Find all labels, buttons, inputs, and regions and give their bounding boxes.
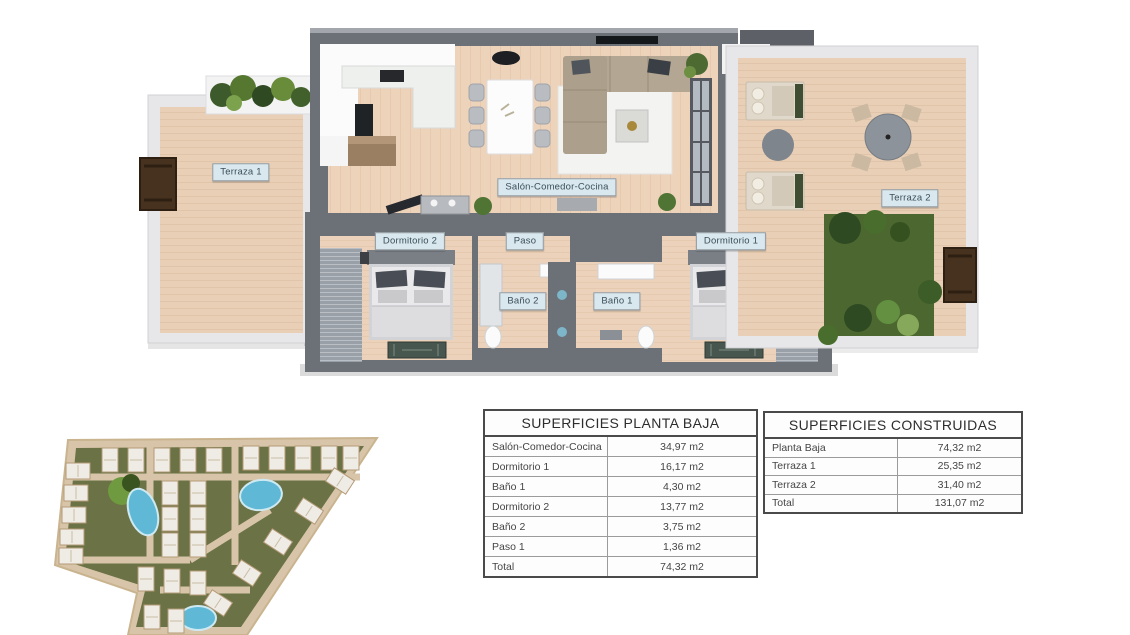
row-label: Terraza 2 xyxy=(765,476,898,494)
dormitorio-2 xyxy=(320,236,472,362)
table-row: Terraza 1 25,35 m2 xyxy=(765,457,1021,476)
site-plan-image xyxy=(40,415,400,635)
row-label: Paso 1 xyxy=(485,537,608,556)
row-value: 25,35 m2 xyxy=(898,458,1021,476)
room-label-terraza-2: Terraza 2 xyxy=(881,189,938,207)
table-row: Salón-Comedor-Cocina 34,97 m2 xyxy=(485,437,756,456)
row-value: 34,97 m2 xyxy=(608,437,756,456)
room-label-paso: Paso xyxy=(506,232,544,250)
lounger xyxy=(746,82,804,120)
row-value: 16,17 m2 xyxy=(608,457,756,476)
row-label: Total xyxy=(765,495,898,513)
row-label: Total xyxy=(485,557,608,576)
table-row: Baño 2 3,75 m2 xyxy=(485,516,756,536)
row-value: 31,40 m2 xyxy=(898,476,1021,494)
row-label: Terraza 1 xyxy=(765,458,898,476)
terraza-2-gate xyxy=(944,248,976,302)
row-label: Dormitorio 2 xyxy=(485,497,608,516)
row-value: 74,32 m2 xyxy=(608,557,756,576)
row-value: 4,30 m2 xyxy=(608,477,756,496)
room-label-bano-2: Baño 2 xyxy=(499,292,546,310)
room-label-salon: Salón-Comedor-Cocina xyxy=(497,178,616,196)
terraza-1-area xyxy=(140,75,314,343)
room-label-dormitorio-1: Dormitorio 1 xyxy=(696,232,766,250)
row-label: Salón-Comedor-Cocina xyxy=(485,437,608,456)
room-label-bano-1: Baño 1 xyxy=(593,292,640,310)
row-value: 13,77 m2 xyxy=(608,497,756,516)
table-superficies-construidas: SUPERFICIES CONSTRUIDAS Planta Baja 74,3… xyxy=(763,411,1023,514)
table-row: Dormitorio 2 13,77 m2 xyxy=(485,496,756,516)
row-value: 74,32 m2 xyxy=(898,439,1021,457)
glass-door xyxy=(690,78,712,206)
page: Terraza 1 Salón-Comedor-Cocina Dormitori… xyxy=(0,0,1130,635)
table-row: Total 74,32 m2 xyxy=(485,556,756,576)
terraza-1-gate xyxy=(140,158,176,210)
row-value: 1,36 m2 xyxy=(608,537,756,556)
row-label: Planta Baja xyxy=(765,439,898,457)
room-label-dormitorio-2: Dormitorio 2 xyxy=(375,232,445,250)
row-label: Dormitorio 1 xyxy=(485,457,608,476)
room-label-terraza-1: Terraza 1 xyxy=(212,163,269,181)
table-row: Dormitorio 1 16,17 m2 xyxy=(485,456,756,476)
row-label: Baño 1 xyxy=(485,477,608,496)
row-value: 131,07 m2 xyxy=(898,495,1021,513)
shutters-icon xyxy=(320,248,362,362)
lounger xyxy=(746,172,804,210)
terraza-2-area xyxy=(726,46,978,348)
row-label: Baño 2 xyxy=(485,517,608,536)
table-superficies-planta-baja: SUPERFICIES PLANTA BAJA Salón-Comedor-Co… xyxy=(483,409,758,578)
row-value: 3,75 m2 xyxy=(608,517,756,536)
table-row: Planta Baja 74,32 m2 xyxy=(765,439,1021,457)
table-row: Terraza 2 31,40 m2 xyxy=(765,475,1021,494)
table-row: Total 131,07 m2 xyxy=(765,494,1021,513)
tv-icon xyxy=(596,36,658,44)
table-title: SUPERFICIES PLANTA BAJA xyxy=(485,411,756,437)
table-row: Paso 1 1,36 m2 xyxy=(485,536,756,556)
table-row: Baño 1 4,30 m2 xyxy=(485,476,756,496)
table-title: SUPERFICIES CONSTRUIDAS xyxy=(765,413,1021,439)
